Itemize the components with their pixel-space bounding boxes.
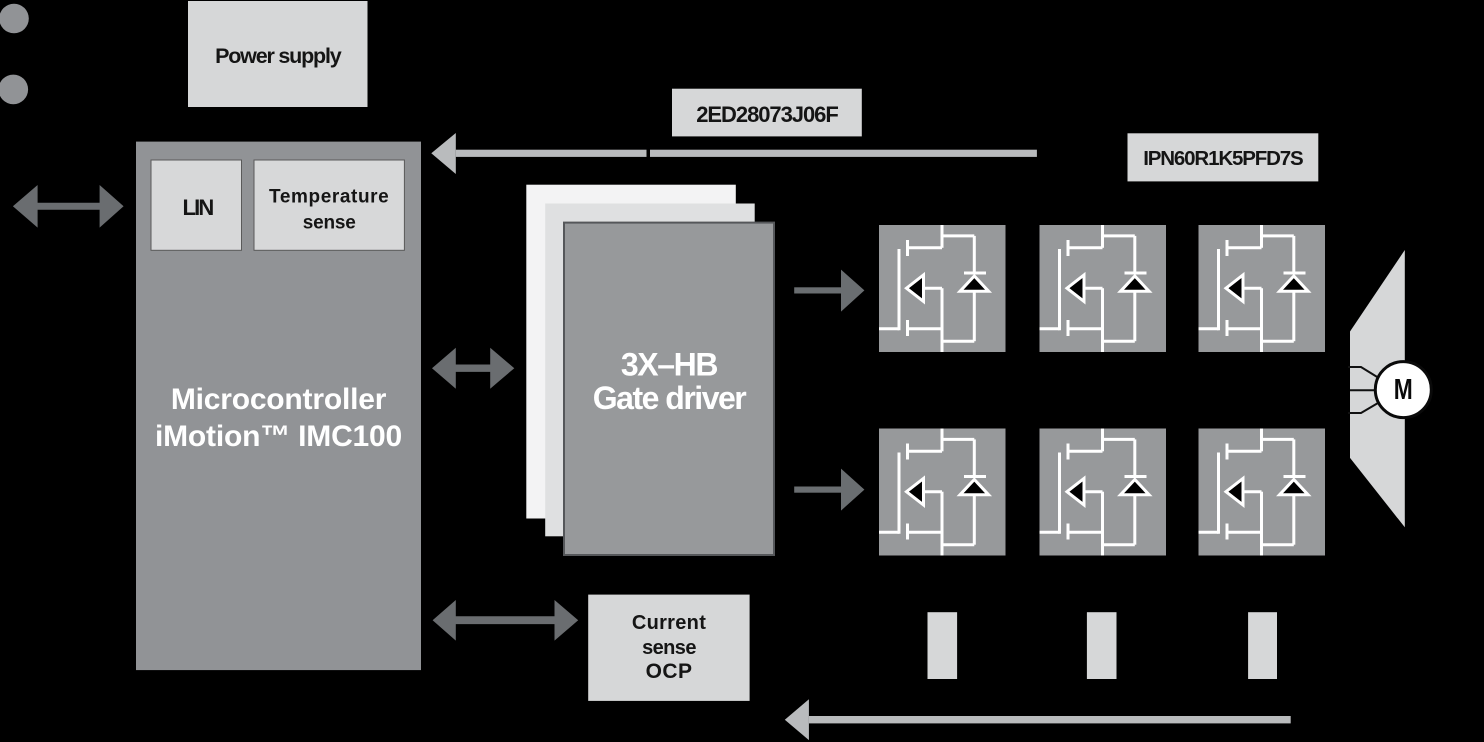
svg-text:sense: sense	[303, 213, 356, 234]
svg-text:Gate driver: Gate driver	[593, 380, 747, 416]
svg-text:Temperature: Temperature	[269, 186, 389, 207]
svg-text:Current: Current	[632, 612, 706, 634]
svg-text:M: M	[1394, 374, 1413, 406]
svg-text:iMotion™ IMC100: iMotion™ IMC100	[155, 420, 402, 453]
svg-text:3X–HB: 3X–HB	[621, 346, 717, 382]
svg-text:Power supply: Power supply	[215, 44, 342, 68]
svg-text:sense: sense	[642, 637, 696, 659]
svg-text:Microcontroller: Microcontroller	[171, 383, 387, 416]
svg-text:LIN: LIN	[182, 195, 213, 220]
svg-text:OCP: OCP	[646, 660, 693, 683]
svg-text:IPN60R1K5PFD7S: IPN60R1K5PFD7S	[1143, 147, 1303, 170]
svg-text:2ED28073J06F: 2ED28073J06F	[696, 102, 838, 127]
